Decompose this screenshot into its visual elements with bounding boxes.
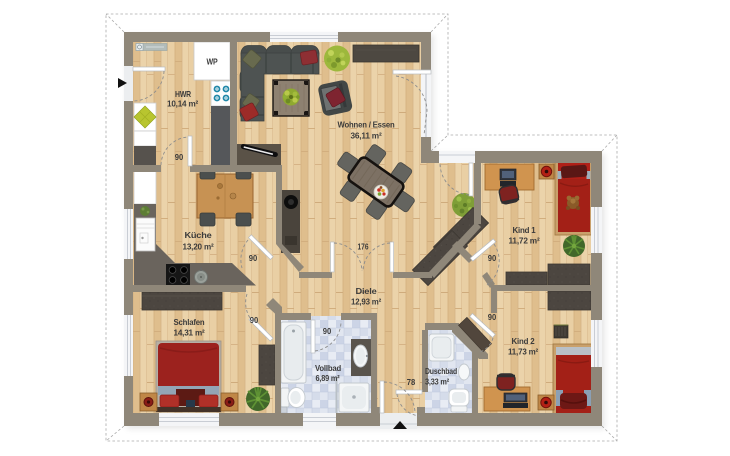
svg-text:10,14 m²: 10,14 m² xyxy=(167,99,198,109)
svg-text:11,73 m²: 11,73 m² xyxy=(508,347,538,357)
svg-text:Vollbad: Vollbad xyxy=(315,363,341,373)
svg-text:12,93 m²: 12,93 m² xyxy=(351,297,381,307)
svg-text:176: 176 xyxy=(358,243,369,252)
svg-text:14,31 m²: 14,31 m² xyxy=(174,328,205,338)
svg-text:11,72 m²: 11,72 m² xyxy=(509,236,540,246)
svg-text:90: 90 xyxy=(250,316,259,325)
svg-text:Diele: Diele xyxy=(356,286,378,296)
svg-text:90: 90 xyxy=(175,153,184,162)
svg-text:6,89 m²: 6,89 m² xyxy=(316,373,340,383)
svg-text:HWR: HWR xyxy=(175,89,191,99)
svg-text:WP: WP xyxy=(207,57,218,67)
svg-text:Kind 1: Kind 1 xyxy=(513,225,536,235)
svg-text:3,33 m²: 3,33 m² xyxy=(425,377,449,387)
svg-text:Schlafen: Schlafen xyxy=(174,317,205,327)
svg-text:90: 90 xyxy=(488,254,497,263)
svg-text:90: 90 xyxy=(249,254,258,263)
svg-text:78: 78 xyxy=(407,378,416,387)
svg-text:13,20 m²: 13,20 m² xyxy=(183,242,214,252)
svg-text:90: 90 xyxy=(488,313,497,322)
svg-text:Kind 2: Kind 2 xyxy=(512,336,535,346)
svg-text:Wohnen / Essen: Wohnen / Essen xyxy=(338,120,395,130)
svg-text:Küche: Küche xyxy=(185,230,213,240)
svg-text:90: 90 xyxy=(323,327,332,336)
svg-text:36,11 m²: 36,11 m² xyxy=(351,131,382,141)
svg-text:Duschbad: Duschbad xyxy=(425,366,457,376)
